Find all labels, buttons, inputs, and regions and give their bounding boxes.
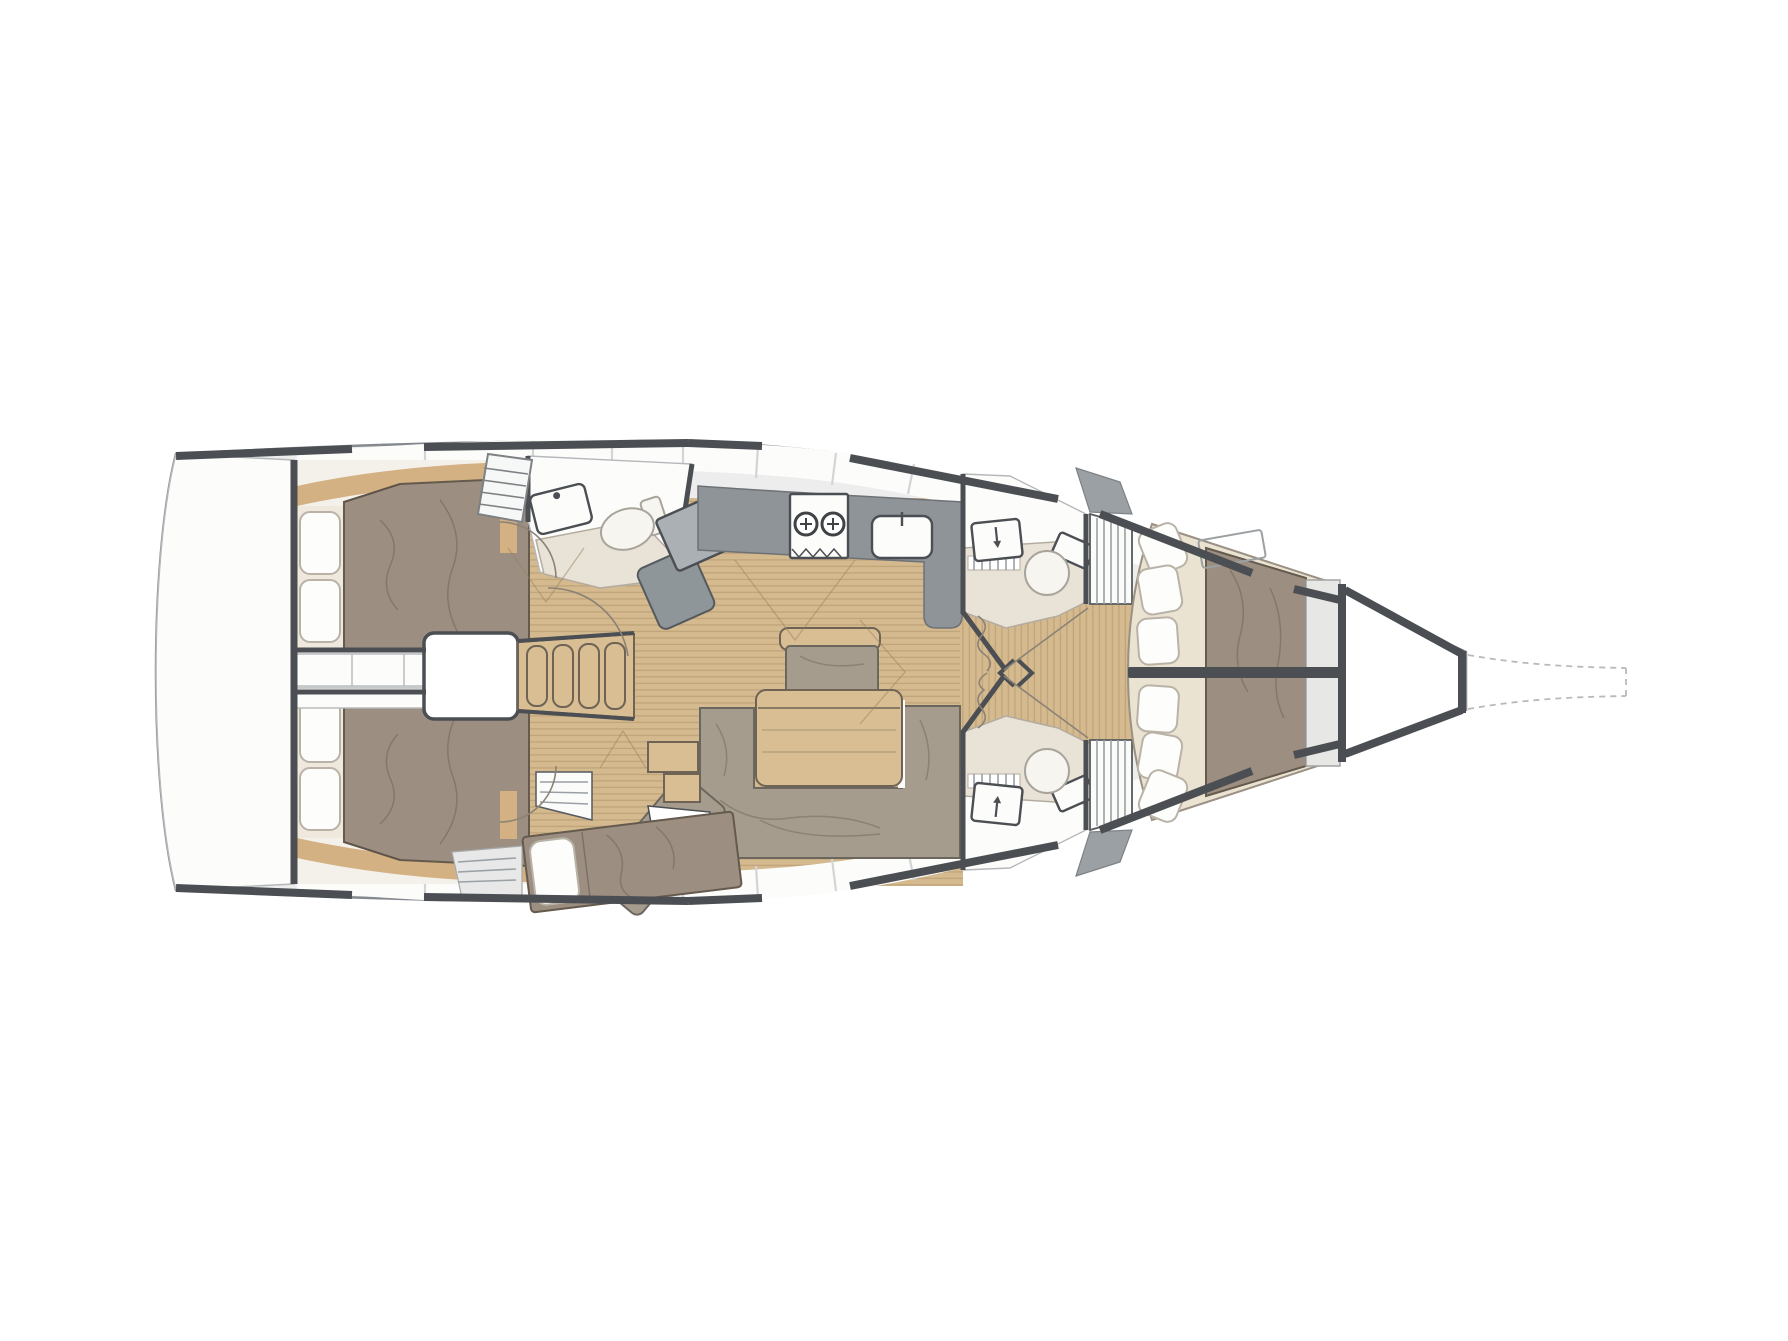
bow-outline-dashed xyxy=(1468,655,1626,709)
vberth-cushion-4 xyxy=(1136,685,1179,734)
companionway-steps xyxy=(518,633,634,719)
side-locker-1 xyxy=(648,742,698,772)
starboard-deck-slab xyxy=(1076,830,1132,876)
forward-head-port-toilet xyxy=(1025,551,1069,595)
port-aft-pillow-2 xyxy=(300,580,340,642)
bench-cushion xyxy=(786,646,878,694)
vberth-cushion-3 xyxy=(1136,617,1179,666)
side-locker-2 xyxy=(664,774,700,802)
aft-corridor xyxy=(296,654,426,708)
saloon-table xyxy=(756,690,902,786)
companionway-hatch xyxy=(478,454,532,522)
forward-head-starboard-toilet xyxy=(1025,749,1069,793)
transom-platform xyxy=(156,454,294,890)
port-aft-pillow-1 xyxy=(300,512,340,574)
centerline-beam xyxy=(1128,667,1340,678)
step-3 xyxy=(579,644,599,708)
engine-compartment xyxy=(424,633,518,719)
step-4 xyxy=(605,643,625,709)
starboard-aft-foot-trim xyxy=(500,791,517,839)
starboard-cabin-step-locker xyxy=(452,846,522,898)
port-deck-slab xyxy=(1076,468,1132,514)
starboard-aft-pillow-2 xyxy=(300,768,340,830)
starboard-aft-cabin xyxy=(297,694,529,898)
floor-plan-canvas xyxy=(0,0,1788,1341)
step-2 xyxy=(553,645,573,707)
step-1 xyxy=(527,646,547,706)
vberth-cushion-2 xyxy=(1136,564,1183,616)
bow xyxy=(1338,584,1626,762)
starboard-aft-pillow-1 xyxy=(300,700,340,762)
boat-floor-plan xyxy=(0,0,1788,1341)
corridor-lockers xyxy=(296,654,426,686)
